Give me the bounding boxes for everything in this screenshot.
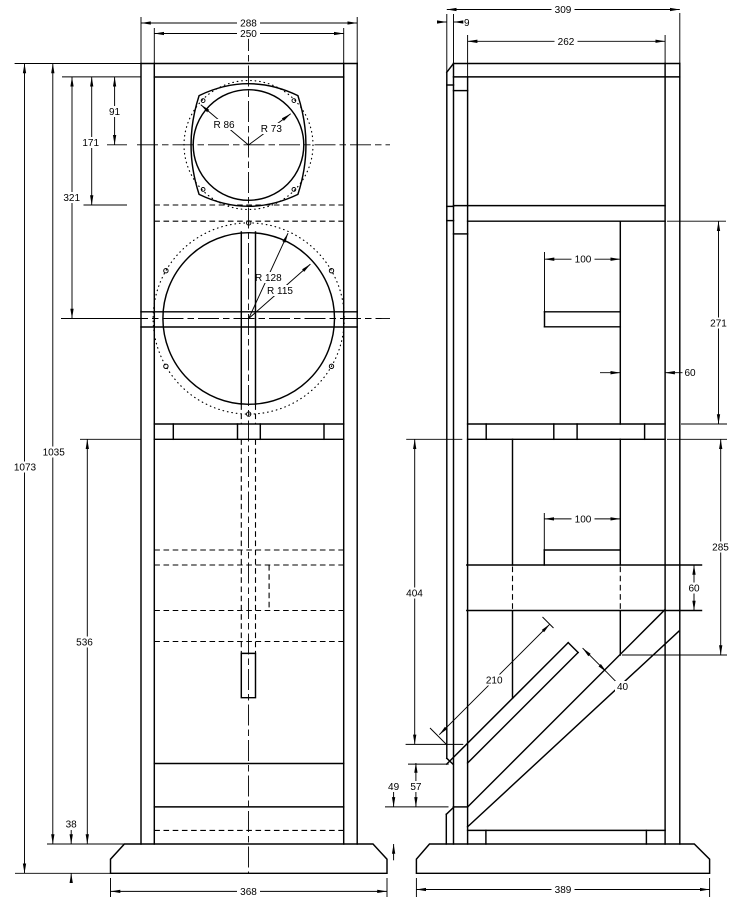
svg-text:R 128: R 128: [255, 273, 282, 284]
svg-text:49: 49: [388, 782, 400, 793]
svg-text:368: 368: [240, 887, 257, 898]
svg-text:9: 9: [464, 18, 470, 29]
svg-text:38: 38: [66, 820, 78, 831]
svg-text:321: 321: [63, 193, 80, 204]
svg-text:271: 271: [710, 319, 727, 330]
svg-text:404: 404: [406, 589, 423, 600]
svg-text:91: 91: [109, 107, 121, 118]
svg-text:210: 210: [486, 676, 503, 687]
svg-text:100: 100: [575, 255, 592, 266]
svg-text:R 86: R 86: [214, 120, 236, 131]
svg-text:60: 60: [684, 368, 696, 379]
svg-text:171: 171: [82, 138, 99, 149]
svg-text:1035: 1035: [43, 448, 66, 459]
svg-text:60: 60: [688, 584, 700, 595]
svg-text:288: 288: [240, 19, 257, 30]
svg-text:285: 285: [712, 543, 729, 554]
svg-text:262: 262: [558, 37, 575, 48]
svg-text:536: 536: [76, 638, 93, 649]
svg-text:1073: 1073: [14, 463, 37, 474]
svg-text:R 115: R 115: [267, 286, 293, 297]
svg-text:R 73: R 73: [261, 124, 283, 135]
svg-text:57: 57: [410, 782, 422, 793]
svg-text:100: 100: [575, 514, 592, 525]
svg-text:309: 309: [555, 5, 572, 16]
svg-text:40: 40: [617, 682, 629, 693]
svg-text:389: 389: [555, 885, 572, 896]
svg-text:250: 250: [240, 29, 257, 40]
